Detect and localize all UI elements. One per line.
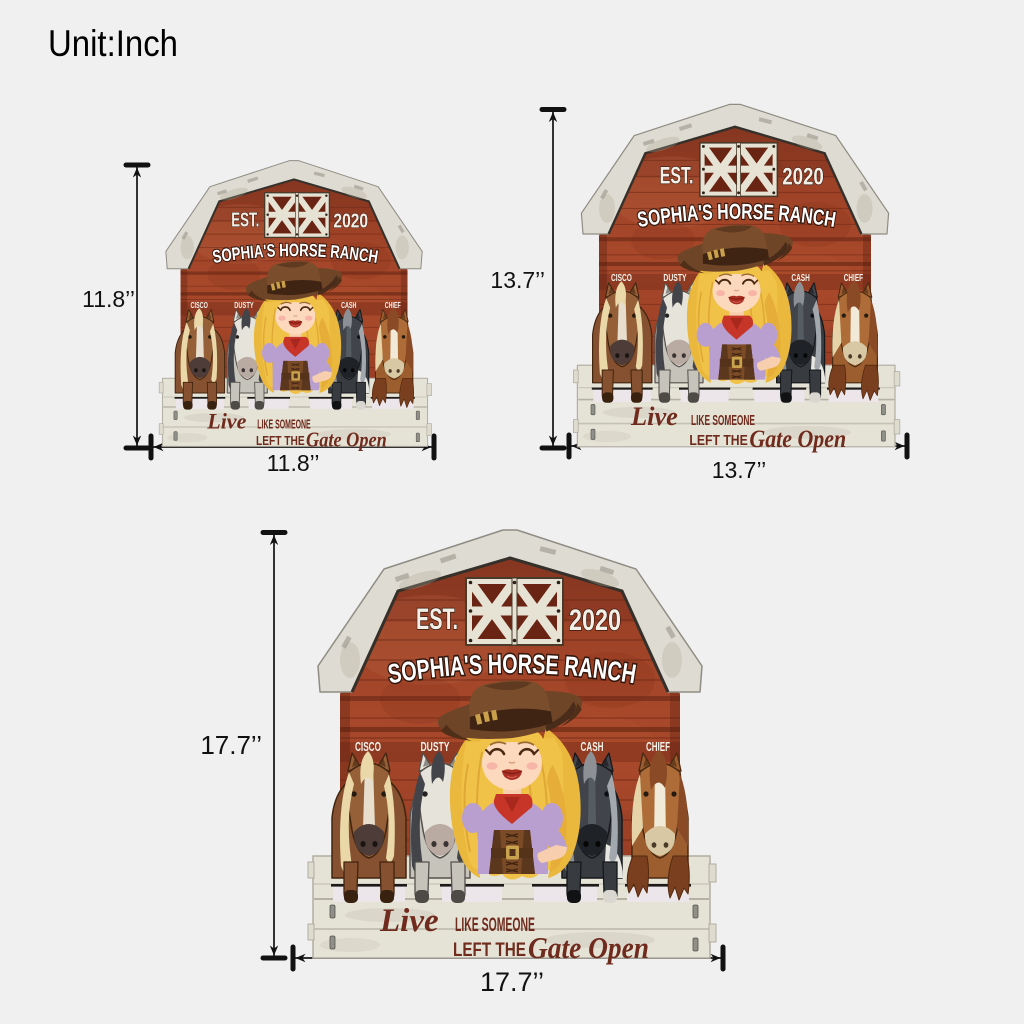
svg-text:11.8’’: 11.8’’ [267, 450, 320, 476]
svg-text:17.7’’: 17.7’’ [200, 730, 262, 760]
svg-text:Unit:Inch: Unit:Inch [48, 23, 178, 64]
svg-text:13.7’’: 13.7’’ [712, 457, 767, 483]
svg-text:13.7’’: 13.7’’ [490, 267, 545, 293]
svg-text:17.7’’: 17.7’’ [480, 967, 544, 997]
svg-text:11.8’’: 11.8’’ [82, 286, 135, 312]
